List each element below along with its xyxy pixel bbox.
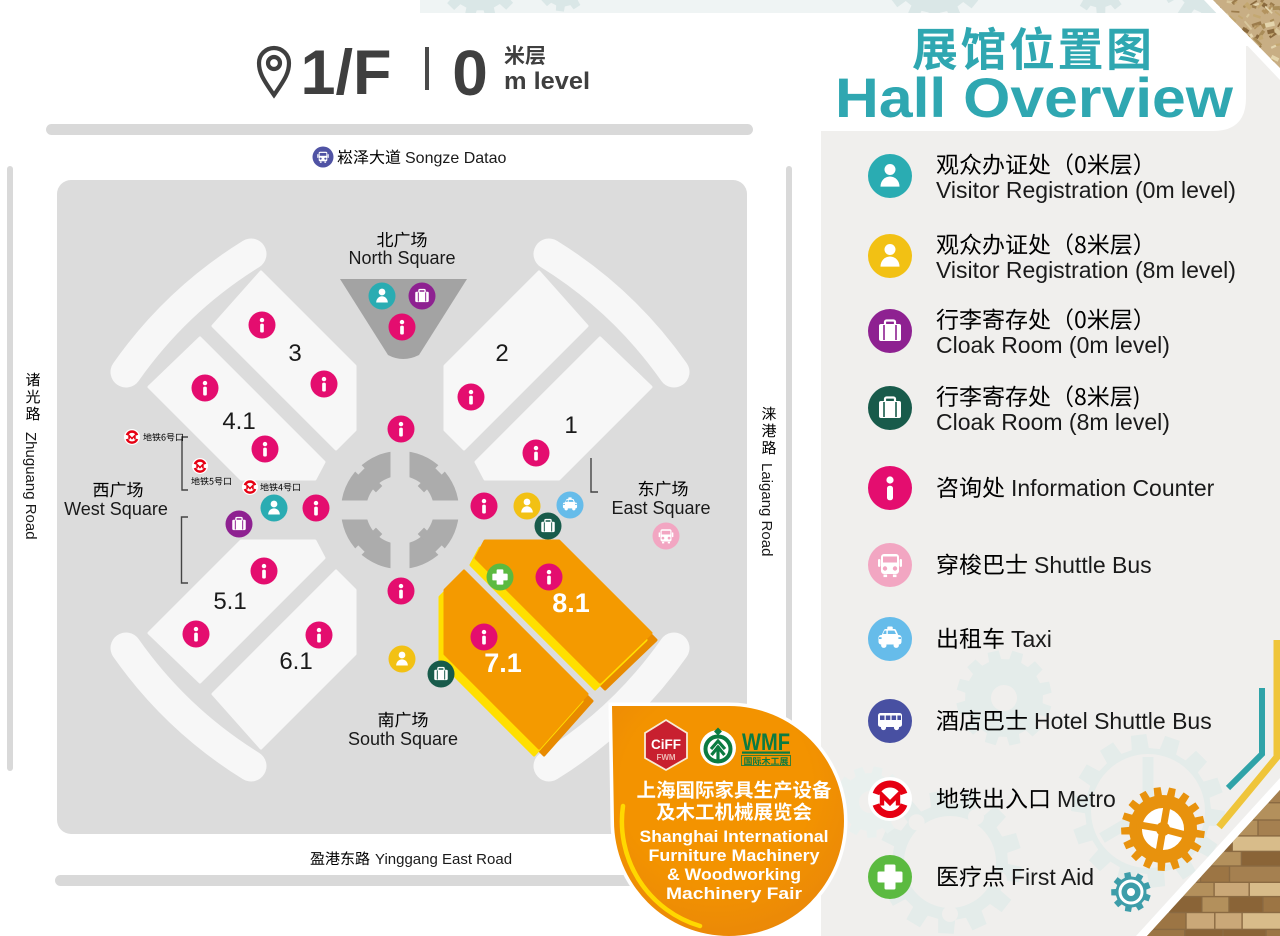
svg-text:Zhuguang Road: Zhuguang Road — [22, 432, 39, 540]
svg-text:CiFF: CiFF — [651, 737, 681, 752]
svg-text:Songze Datao: Songze Datao — [405, 150, 507, 167]
svg-text:East Square: East Square — [611, 498, 710, 518]
svg-text:m level: m level — [504, 68, 590, 95]
svg-text:South Square: South Square — [348, 729, 458, 749]
svg-text:5.1: 5.1 — [213, 588, 246, 615]
svg-text:7.1: 7.1 — [484, 648, 522, 678]
svg-text:Shanghai International: Shanghai International — [640, 827, 829, 846]
svg-text:0: 0 — [452, 37, 488, 109]
svg-text:Visitor Registration (8m level: Visitor Registration (8m level) — [936, 257, 1236, 283]
svg-text:2: 2 — [495, 340, 508, 367]
svg-text:Laigang Road: Laigang Road — [758, 463, 775, 556]
svg-text:Machinery Fair: Machinery Fair — [666, 884, 802, 903]
svg-text:6.1: 6.1 — [279, 648, 312, 675]
svg-text:Metro: Metro — [1057, 786, 1116, 812]
svg-text:North Square: North Square — [348, 248, 455, 268]
svg-text:1: 1 — [564, 412, 577, 439]
svg-text:Information Counter: Information Counter — [1011, 475, 1215, 501]
svg-text:Cloak Room (8m level): Cloak Room (8m level) — [936, 409, 1170, 435]
svg-text:& Woodworking: & Woodworking — [667, 865, 801, 884]
svg-text:Furniture Machinery: Furniture Machinery — [649, 846, 821, 865]
svg-text:1/F: 1/F — [300, 38, 391, 108]
svg-text:Visitor Registration (0m level: Visitor Registration (0m level) — [936, 177, 1236, 203]
svg-text:Cloak Room (0m level): Cloak Room (0m level) — [936, 332, 1170, 358]
svg-text:Taxi: Taxi — [1011, 626, 1052, 652]
svg-text:First Aid: First Aid — [1011, 864, 1094, 890]
svg-text:4.1: 4.1 — [222, 408, 255, 435]
svg-text:8.1: 8.1 — [552, 588, 590, 618]
svg-text:Hall Overview: Hall Overview — [835, 66, 1233, 129]
svg-text:3: 3 — [288, 340, 301, 367]
svg-text:Yinggang East Road: Yinggang East Road — [375, 851, 512, 868]
svg-text:FWM: FWM — [656, 753, 675, 762]
svg-text:West Square: West Square — [64, 499, 168, 519]
svg-text:Hotel Shuttle Bus: Hotel Shuttle Bus — [1034, 708, 1212, 734]
svg-text:Shuttle Bus: Shuttle Bus — [1034, 552, 1152, 578]
